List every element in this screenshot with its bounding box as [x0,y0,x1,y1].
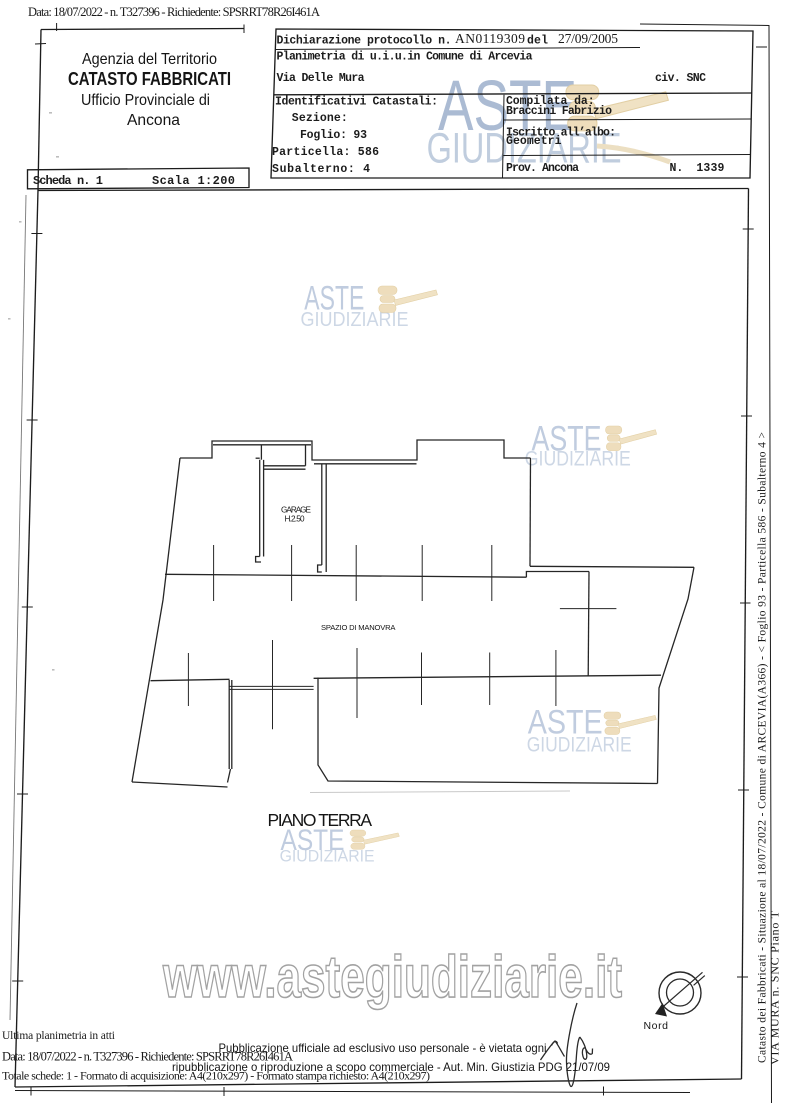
svg-text:Planimetria di u.i.u.in Comune: Planimetria di u.i.u.in Comune di Arcevi… [277,51,533,64]
svg-text:SPAZIO DI MANOVRA: SPAZIO DI MANOVRA [321,623,396,632]
svg-text:www.astegiudiziarie.it: www.astegiudiziarie.it [162,944,622,1010]
svg-text:GIUDIZIARIE: GIUDIZIARIE [525,448,631,471]
svg-text:Identificativi Catastali:: Identificativi Catastali: [275,96,438,109]
svg-text:Subalterno: 4: Subalterno: 4 [272,163,370,176]
svg-text:Scala 1:200: Scala 1:200 [152,174,235,188]
svg-text:Scheda n. 1: Scheda n. 1 [33,174,103,188]
svg-text:CATASTO FABBRICATI: CATASTO FABBRICATI [68,68,231,89]
svg-text:Prov. Ancona: Prov. Ancona [506,162,579,175]
svg-text:Particella: 586: Particella: 586 [272,146,379,159]
svg-text:AN0119309: AN0119309 [455,31,525,46]
svg-text:Ufficio Provinciale di: Ufficio Provinciale di [81,92,210,109]
svg-text:Foglio: 93: Foglio: 93 [300,129,367,142]
svg-text:Via Delle Mura: Via Delle Mura [277,72,365,85]
svg-text:GARAGE: GARAGE [281,506,312,515]
svg-text:VIA MURA n. SNC Piano T: VIA MURA n. SNC Piano T [768,910,782,1065]
svg-text:del: del [527,35,548,48]
svg-text:1339: 1339 [696,162,724,175]
svg-text:H.2.50: H.2.50 [285,515,305,524]
svg-text:Braccini Fabrizio: Braccini Fabrizio [506,105,612,118]
svg-text:Ultima planimetria in atti: Ultima planimetria in atti [2,1030,115,1042]
svg-text:Geometri: Geometri [506,135,562,148]
svg-text:Sezione:: Sezione: [292,112,348,125]
svg-text:Ancona: Ancona [127,112,180,129]
svg-text:N.: N. [670,162,684,175]
svg-text:Dichiarazione protocollo n.: Dichiarazione protocollo n. [277,35,452,48]
svg-text:civ. SNC: civ. SNC [655,72,706,85]
svg-text:Agenzia del Territorio: Agenzia del Territorio [82,51,217,68]
svg-text:Pubblicazione ufficiale ad esc: Pubblicazione ufficiale ad esclusivo uso… [219,1041,547,1055]
svg-text:Nord: Nord [644,1020,669,1032]
svg-text:27/09/2005: 27/09/2005 [558,31,618,46]
svg-text:ripubblicazione o riproduzione: ripubblicazione o riproduzione a scopo c… [172,1060,610,1074]
svg-text:PIANO TERRA: PIANO TERRA [268,810,373,830]
svg-text:Data: 18/07/2022 - n. T327396: Data: 18/07/2022 - n. T327396 - Richiede… [28,5,320,19]
svg-text:GIUDIZIARIE: GIUDIZIARIE [527,734,632,757]
